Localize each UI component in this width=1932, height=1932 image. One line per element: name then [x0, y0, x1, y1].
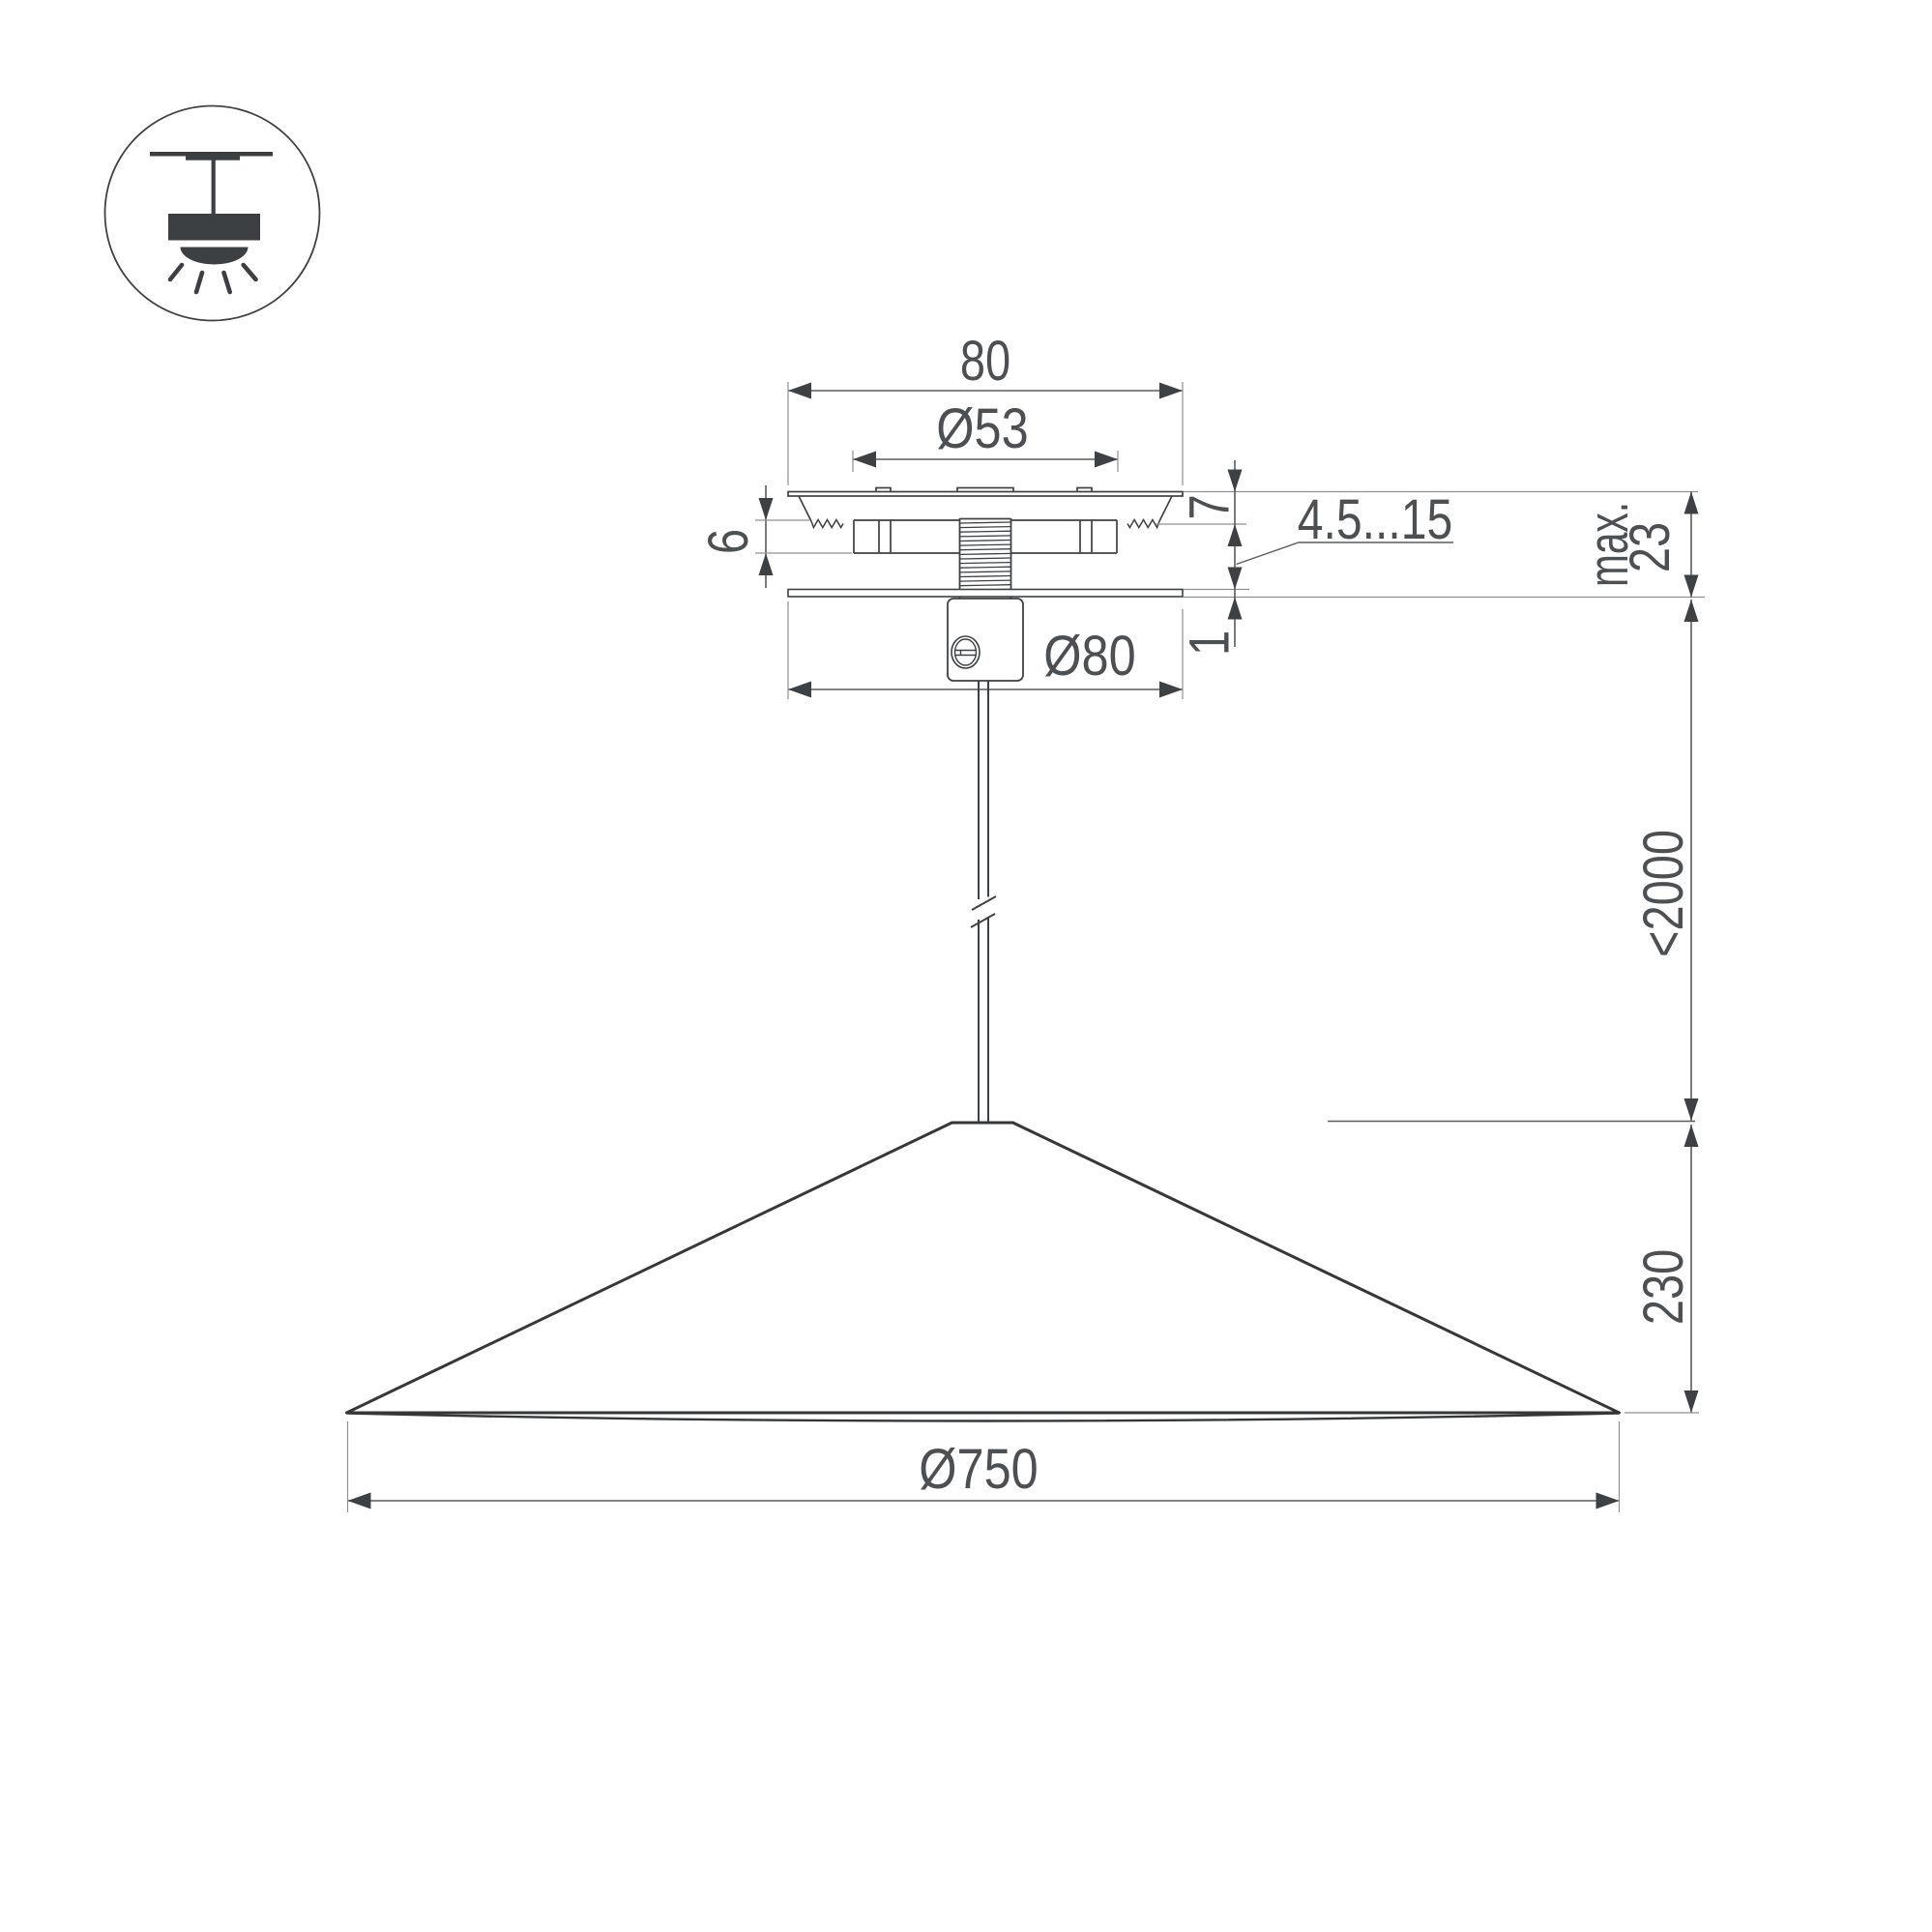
svg-text:Ø80: Ø80 [1043, 625, 1135, 688]
svg-text:1: 1 [1179, 630, 1242, 656]
svg-text:<2000: <2000 [1632, 830, 1695, 957]
svg-text:230: 230 [1632, 1249, 1695, 1325]
svg-text:Ø53: Ø53 [936, 397, 1028, 460]
svg-text:80: 80 [960, 330, 1010, 393]
svg-text:Ø750: Ø750 [919, 1438, 1038, 1501]
svg-text:7: 7 [1179, 494, 1242, 519]
svg-text:23: 23 [1619, 522, 1682, 572]
svg-text:6: 6 [697, 529, 760, 554]
